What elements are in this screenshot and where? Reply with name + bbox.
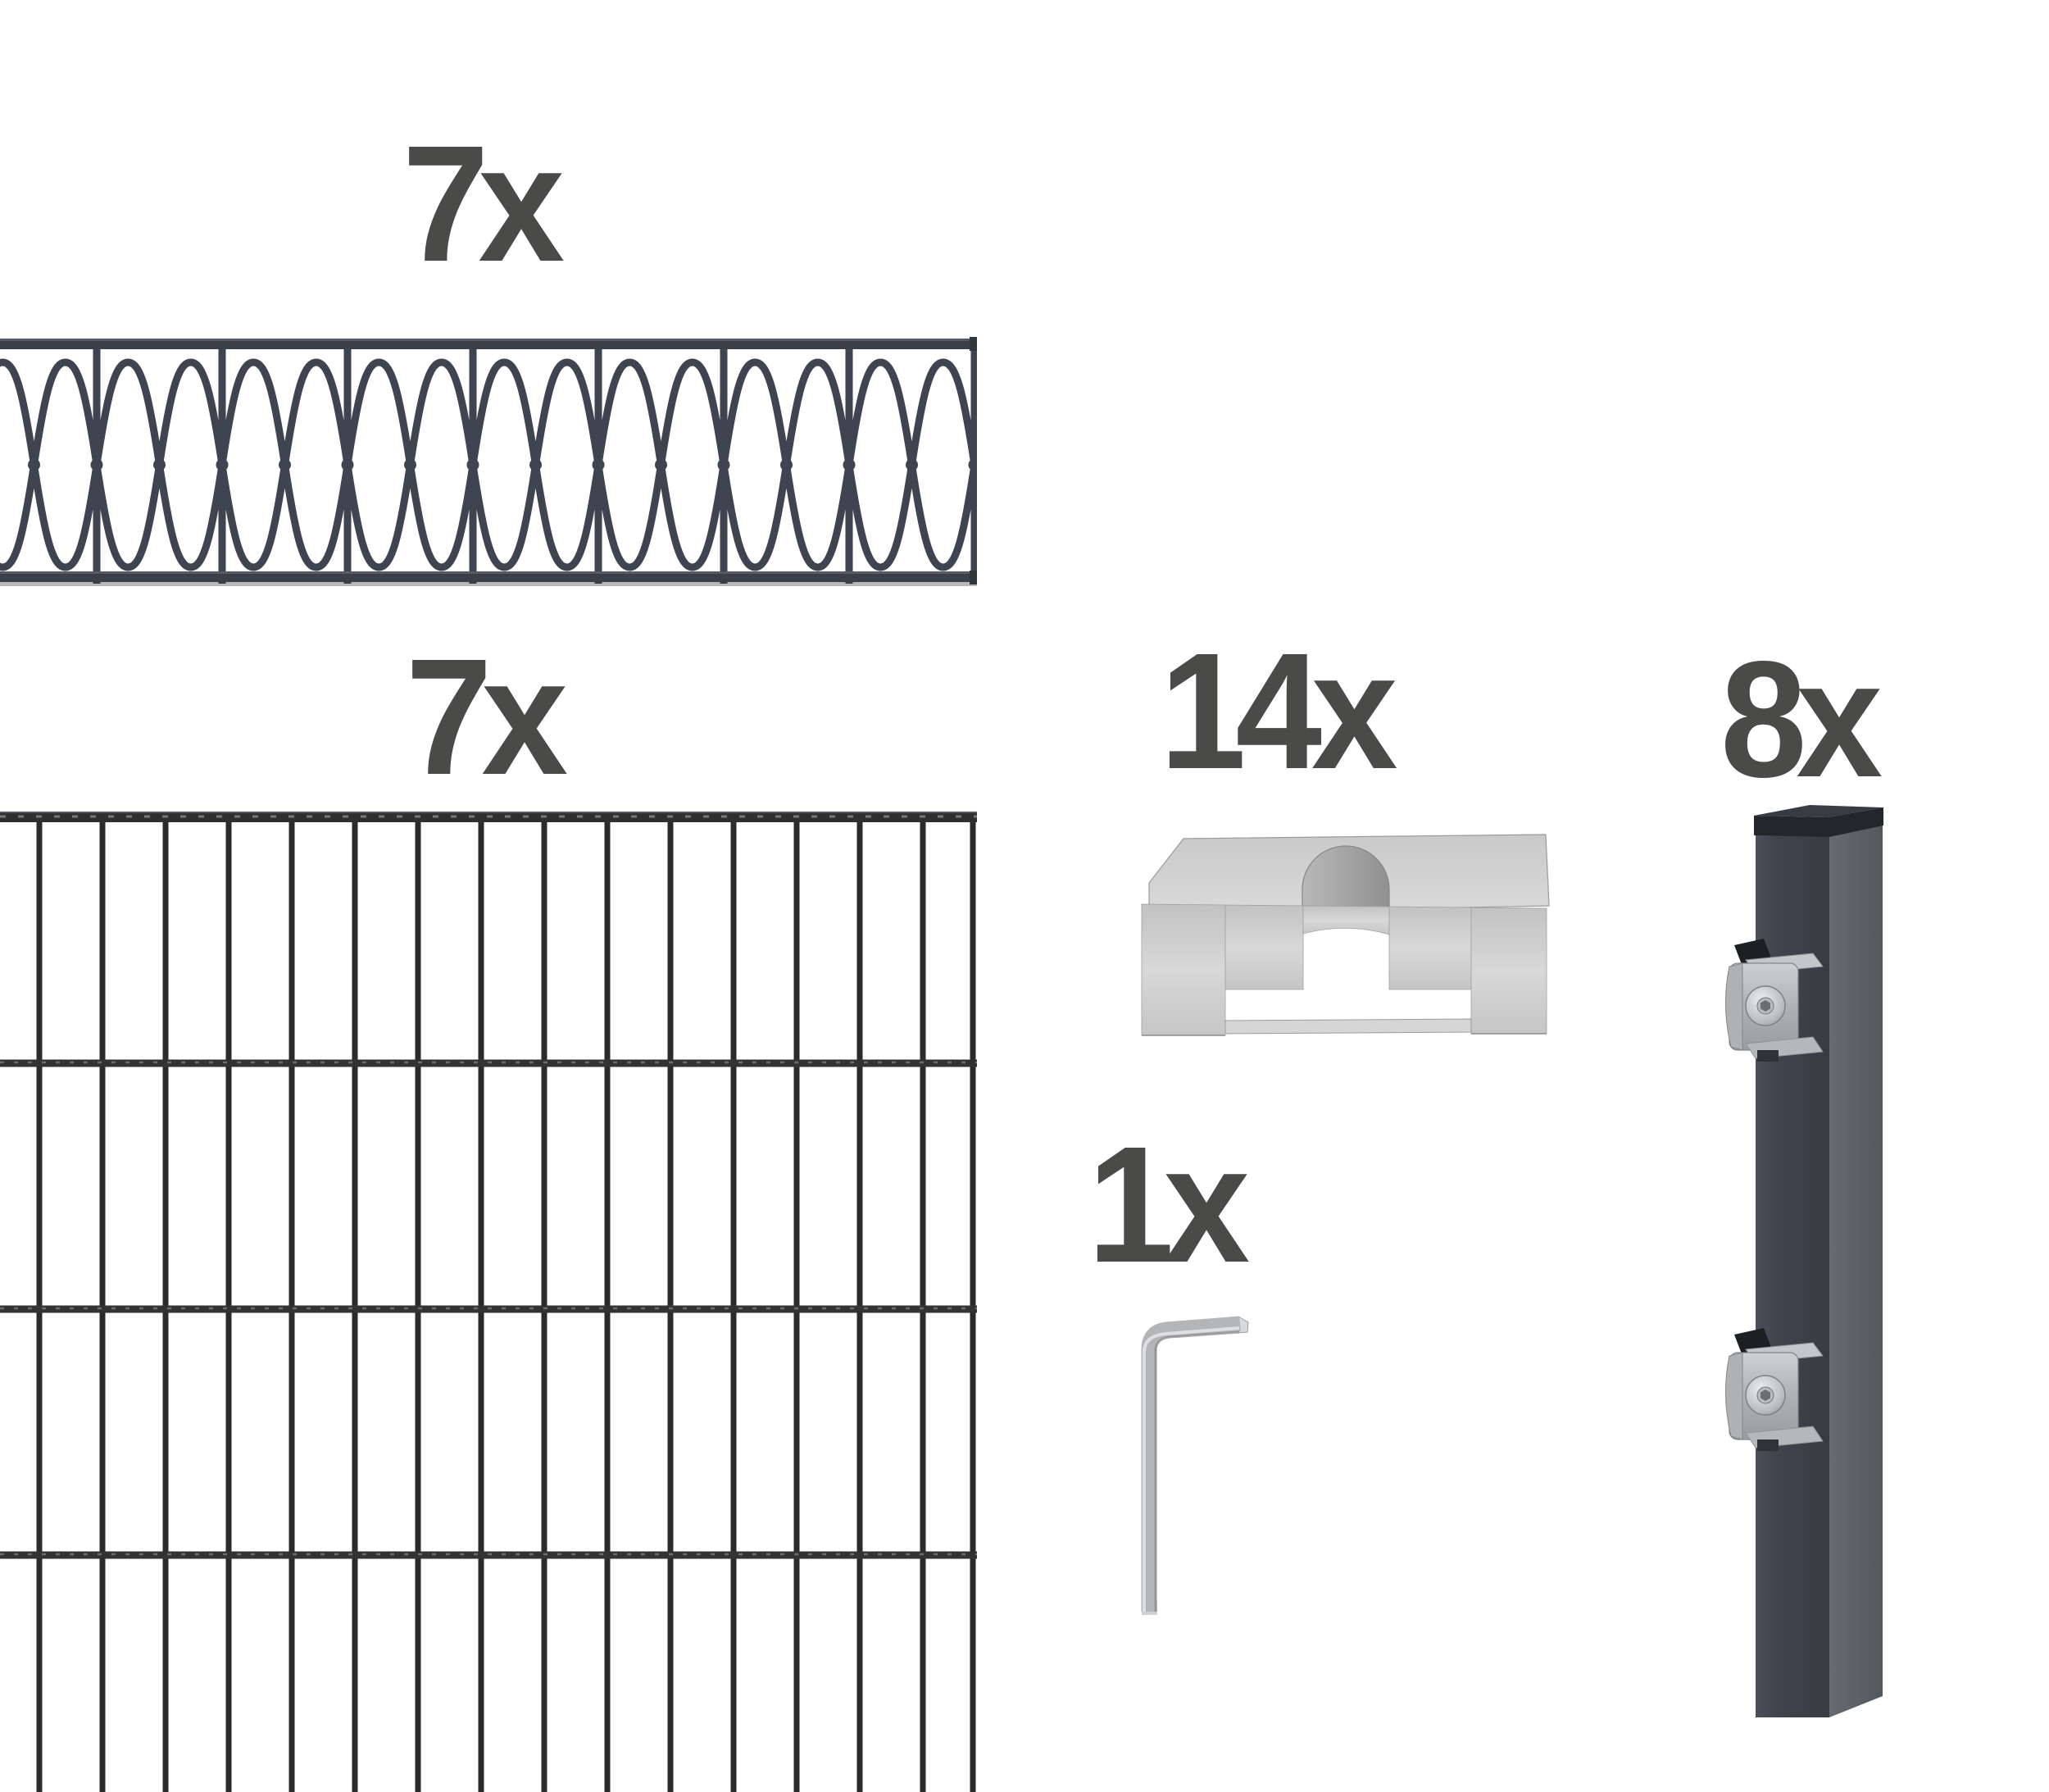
- mesh-vertical-bar: [289, 813, 295, 1792]
- mesh-vertical-bar: [226, 813, 232, 1792]
- quantity-label-clamps: 14x: [1160, 628, 1387, 794]
- ornament-weld-knot: [153, 459, 166, 471]
- ornament-wave-wires: [0, 362, 977, 567]
- ornament-weld-knot: [655, 459, 667, 471]
- ornament-weld-knots: [28, 459, 977, 471]
- ornament-weld-knot: [404, 459, 416, 471]
- ornament-weld-knot: [529, 459, 542, 471]
- mesh-vertical-bar: [794, 813, 800, 1792]
- quantity-label-mesh-panel: 7x: [406, 634, 557, 799]
- ornament-weld-knot: [593, 459, 605, 471]
- hex-key-image: [1135, 1312, 1250, 1617]
- ornament-weld-knot: [279, 459, 291, 471]
- mesh-vertical-bar: [668, 813, 674, 1792]
- post-side-face: [1829, 824, 1883, 1717]
- mesh-vertical-bar: [100, 813, 106, 1792]
- ornament-weld-knot: [843, 459, 856, 471]
- ornament-weld-knot: [906, 459, 918, 471]
- mesh-vertical-bar: [37, 813, 43, 1792]
- ornamental-fence-panel-image: [0, 336, 977, 595]
- quantity-label-posts: 8x: [1720, 636, 1872, 802]
- hex-key-shaft: [1149, 1324, 1240, 1612]
- mesh-vertical-bar: [542, 813, 547, 1792]
- clamp-front-face: [1142, 904, 1547, 1035]
- mesh-vertical-bar: [479, 813, 484, 1792]
- mesh-horizontal-wires: [0, 812, 977, 1559]
- quantity-label-hex-key: 1x: [1088, 1121, 1239, 1287]
- fence-post-image: [1721, 799, 1893, 1722]
- mesh-vertical-bar: [731, 813, 737, 1792]
- clamp-rear-flange: [1225, 1019, 1471, 1034]
- mesh-vertical-bar: [857, 813, 863, 1792]
- double-rod-mesh-panel-image: [0, 807, 977, 1792]
- mesh-vertical-bar: [163, 813, 169, 1792]
- ornament-weld-knot: [969, 459, 978, 471]
- hex-key-shadow-edge: [1156, 1332, 1239, 1612]
- ornament-weld-knot: [342, 459, 354, 471]
- ornament-weld-knot: [718, 459, 730, 471]
- ornament-weld-knot: [28, 459, 40, 471]
- quantity-label-ornamental-panel: 7x: [402, 121, 554, 286]
- mesh-vertical-bar: [416, 813, 421, 1792]
- flat-connector-clamp-image: [1139, 832, 1551, 1039]
- ornament-weld-knot: [91, 459, 103, 471]
- mesh-vertical-bar: [352, 813, 358, 1792]
- ornament-weld-knot: [467, 459, 479, 471]
- ornament-weld-knot: [216, 459, 229, 471]
- ornament-weld-knot: [780, 459, 793, 471]
- hex-key-highlight: [1144, 1328, 1239, 1612]
- product-image-canvas: 7x 7x 14x 8x 1x: [0, 0, 2049, 1792]
- mesh-vertical-bars: [37, 813, 976, 1792]
- mesh-vertical-bar: [605, 813, 611, 1792]
- mesh-vertical-bar: [920, 813, 926, 1792]
- mesh-vertical-bar: [970, 813, 976, 1792]
